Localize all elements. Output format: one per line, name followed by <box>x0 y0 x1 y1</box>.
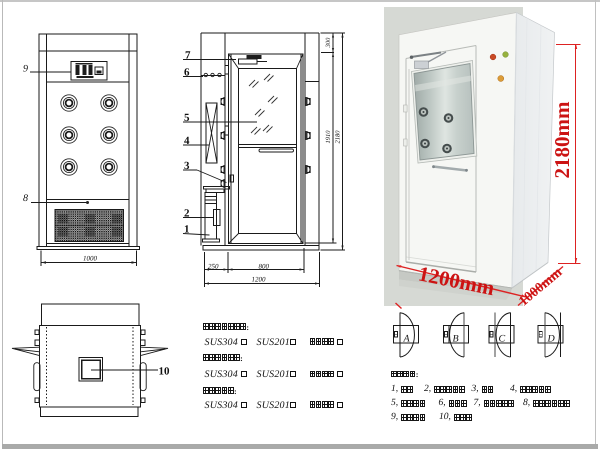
svg-text:2180mm: 2180mm <box>550 101 574 178</box>
